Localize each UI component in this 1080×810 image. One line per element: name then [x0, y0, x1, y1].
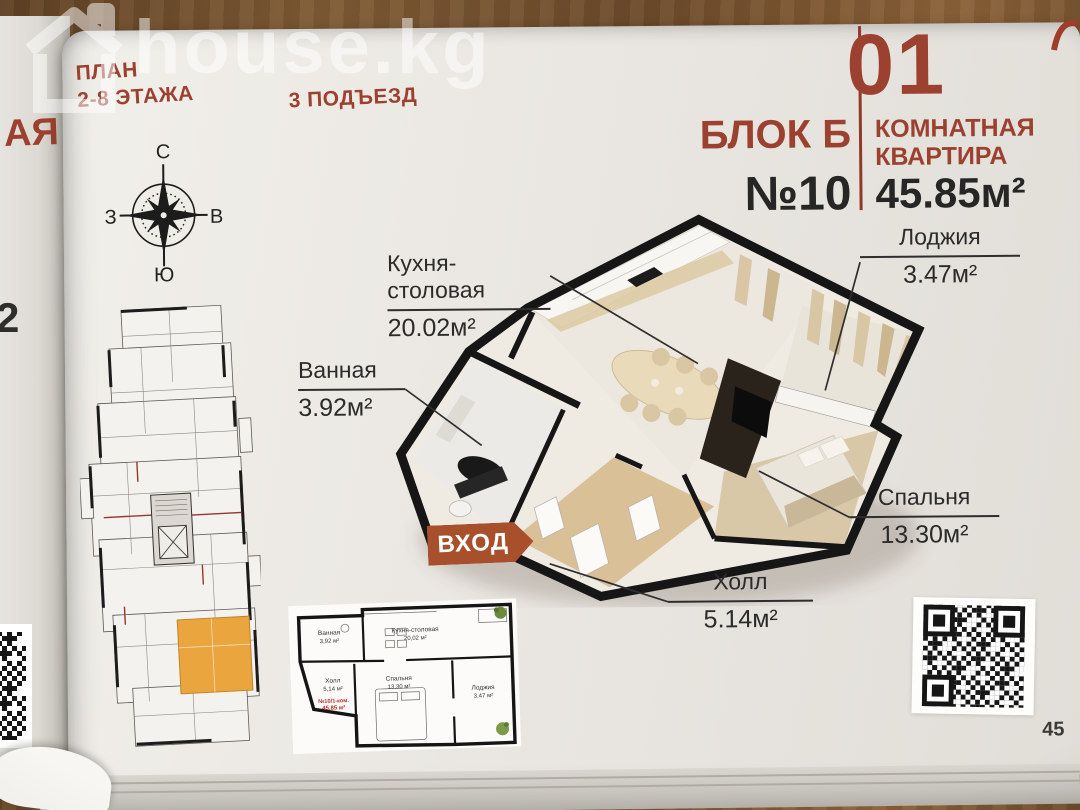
mini-room-area: 3,47 м² — [474, 693, 494, 700]
corner-logo-fragment — [1050, 12, 1080, 54]
block-label: БЛОК Б — [663, 112, 851, 159]
apartment-type-label: КОМНАТНАЯ КВАРТИРА — [875, 115, 1035, 171]
mini-room-area: 13,30 м² — [388, 684, 411, 691]
building-floor-plan — [78, 303, 262, 753]
room-name: Спальня — [849, 483, 999, 518]
compass-north-label: С — [156, 142, 171, 164]
previous-page-edge: АЯ 2 — [0, 16, 70, 782]
room-name: Ванная — [298, 356, 405, 391]
plan-title-line2: 2-8 ЭТАЖА — [77, 82, 195, 112]
room-area: 3.92м² — [298, 390, 405, 423]
plan-title-line1: ПЛАН — [75, 58, 138, 85]
brochure-photo: АЯ 2 — [0, 0, 1080, 810]
page-title: ПЛАН 2-8 ЭТАЖА — [75, 53, 195, 115]
entrance-label: 3 ПОДЪЕЗД — [288, 84, 417, 114]
room-area: 5.14м² — [668, 602, 813, 635]
room-name: Лоджия — [860, 223, 1020, 258]
mini-room-name: Ванная — [318, 629, 341, 637]
room-label-kitchen: Кухня-столовая 20.02м² — [387, 249, 551, 343]
room-label-hall: Холл 5.14м² — [668, 568, 814, 635]
mini-room-area: 3,92 м² — [320, 638, 340, 645]
qr-code — [912, 597, 1036, 715]
compass-east-label: В — [210, 206, 224, 228]
room-label-bath: Ванная 3.92м² — [298, 356, 406, 423]
page-number: 45 — [1042, 718, 1064, 741]
highlighted-unit — [177, 616, 253, 694]
mini-floor-plan: Ванная 3,92 м² Кухня-столовая 20,02 м² Х… — [286, 596, 523, 756]
room-label-loggia: Лоджия 3.47м² — [860, 223, 1021, 290]
room-label-bedroom: Спальня 13.30м² — [849, 483, 1000, 550]
prev-page-text-fragment: АЯ — [3, 111, 59, 156]
brochure-page: ПЛАН 2-8 ЭТАЖА 3 ПОДЪЕЗД 01 БЛОК Б №10 К… — [62, 22, 1080, 783]
compass-south-label: Ю — [154, 264, 174, 283]
room-area: 13.30м² — [849, 517, 999, 550]
room-area: 20.02м² — [387, 310, 550, 343]
mini-room-name: Лоджия — [472, 684, 496, 692]
prev-page-qr-partial — [0, 616, 34, 756]
mini-room-name: Холл — [325, 677, 341, 685]
apartment-type-line1: КОМНАТНАЯ — [875, 114, 1035, 143]
room-area: 3.47м² — [860, 257, 1020, 290]
room-name: Кухня-столовая — [387, 249, 551, 311]
qr-code-card — [912, 597, 1036, 715]
compass-west-label: З — [105, 207, 117, 229]
prev-page-number-fragment: 2 — [0, 294, 19, 342]
room-name: Холл — [668, 568, 813, 603]
room-count-number: 01 — [846, 21, 946, 108]
apartment-type-line2: КВАРТИРА — [875, 141, 1007, 170]
mini-room-area: 5,14 м² — [323, 686, 343, 693]
mini-unit-label: №10/1-ком. 45,85 м² — [318, 698, 350, 712]
mini-room-area: 20,02 м² — [404, 635, 427, 642]
svg-text:№10/1-ком.: №10/1-ком. — [318, 698, 349, 705]
svg-text:45,85 м²: 45,85 м² — [322, 704, 345, 712]
mini-room-name: Спальня — [386, 675, 413, 683]
compass-rose: С Ю З В — [103, 142, 224, 283]
